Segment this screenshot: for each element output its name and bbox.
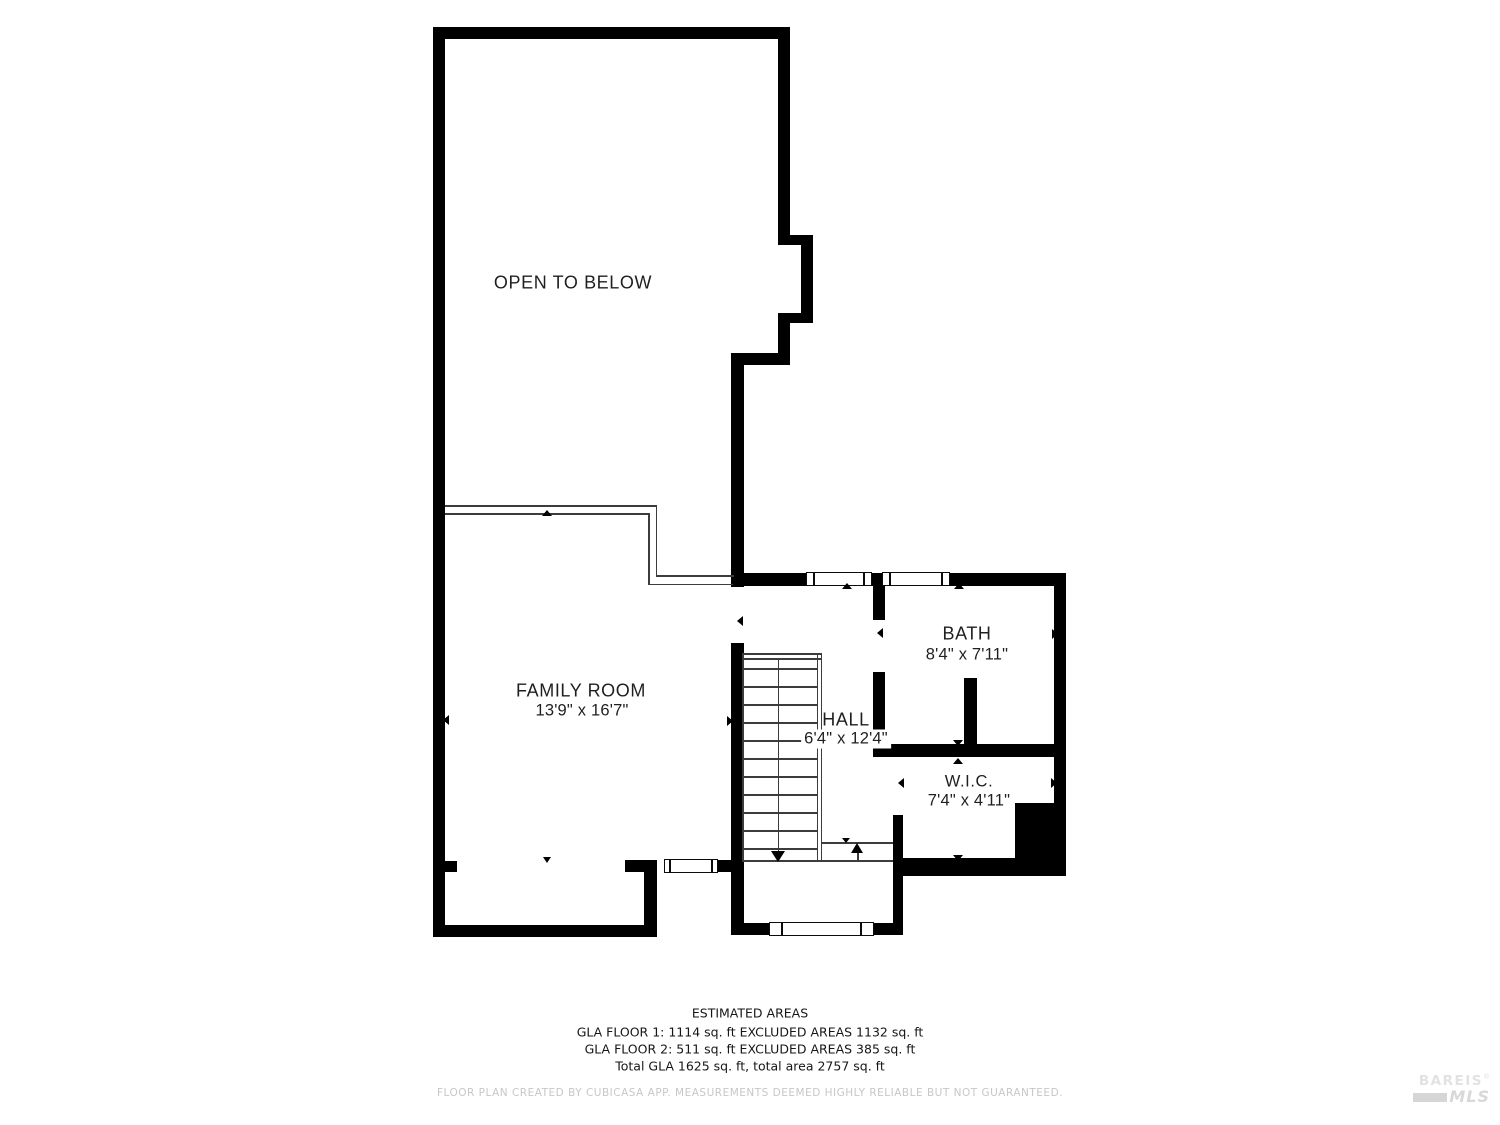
door-marker bbox=[877, 628, 883, 638]
wall-segment bbox=[731, 353, 744, 587]
window bbox=[769, 922, 874, 936]
stair-railing-line bbox=[743, 758, 817, 760]
open-to-below-label: OPEN TO BELOW bbox=[494, 273, 652, 294]
door-marker bbox=[953, 758, 963, 764]
window bbox=[664, 859, 718, 873]
bath-label: BATH bbox=[942, 624, 991, 645]
family-room-label: FAMILY ROOM bbox=[516, 681, 646, 702]
opening-marker bbox=[953, 855, 963, 861]
wall-segment bbox=[445, 861, 457, 872]
family-room-dimensions: 13'9" x 16'7" bbox=[535, 702, 628, 721]
total-gla-line: Total GLA 1625 sq. ft, total area 2757 s… bbox=[0, 1059, 1500, 1074]
wall-segment bbox=[873, 586, 885, 620]
stair-railing-line bbox=[742, 653, 822, 655]
window-mullion bbox=[669, 860, 671, 872]
window-mullion bbox=[860, 923, 862, 935]
opening-marker bbox=[1052, 629, 1058, 639]
stair-railing-line bbox=[648, 584, 733, 586]
window-mullion bbox=[813, 573, 815, 585]
window-marker bbox=[842, 583, 852, 589]
stair-railing-line bbox=[743, 776, 817, 778]
floor-plan: OPEN TO BELOW FAMILY ROOM 13'9" x 16'7" … bbox=[0, 0, 1500, 1125]
wall-segment bbox=[433, 27, 790, 39]
window-mullion bbox=[711, 860, 713, 872]
opening-marker bbox=[443, 715, 449, 725]
opening-marker bbox=[543, 857, 551, 863]
wall-segment bbox=[950, 573, 1066, 586]
door-marker bbox=[898, 778, 904, 788]
stair-railing-line bbox=[778, 658, 780, 854]
stair-railing-line bbox=[743, 686, 817, 688]
stair-railing-line bbox=[743, 704, 817, 706]
opening-marker bbox=[1051, 778, 1057, 788]
window-mullion bbox=[781, 923, 783, 935]
stair-railing-line bbox=[648, 513, 650, 585]
disclaimer-text: FLOOR PLAN CREATED BY CUBICASA APP. MEAS… bbox=[0, 1087, 1500, 1099]
opening-marker bbox=[727, 716, 733, 726]
stair-railing-line bbox=[743, 830, 817, 832]
estimated-areas-title: ESTIMATED AREAS bbox=[0, 1006, 1500, 1021]
window-mullion bbox=[889, 573, 891, 585]
wall-segment bbox=[731, 573, 807, 586]
wall-segment bbox=[893, 858, 1066, 876]
window-mullion bbox=[863, 573, 865, 585]
door-marker bbox=[953, 740, 963, 746]
wall-segment bbox=[801, 235, 813, 323]
gla-floor2-line: GLA FLOOR 2: 511 sq. ft EXCLUDED AREAS 3… bbox=[0, 1042, 1500, 1057]
wall-segment bbox=[625, 860, 652, 872]
wall-segment bbox=[433, 925, 657, 937]
hall-dimensions: 6'4" x 12'4" bbox=[801, 730, 891, 749]
wall-segment bbox=[731, 923, 771, 935]
door-marker bbox=[737, 616, 743, 626]
gla-floor1-line: GLA FLOOR 1: 1114 sq. ft EXCLUDED AREAS … bbox=[0, 1025, 1500, 1040]
wall-segment bbox=[964, 678, 977, 744]
bareis-mls-logo: BAREIS® MLS bbox=[1398, 1072, 1490, 1106]
opening-marker bbox=[842, 838, 850, 843]
stair-railing-line bbox=[445, 505, 657, 507]
stair-railing-line bbox=[743, 722, 817, 724]
stair-railing-line bbox=[821, 653, 823, 862]
stair-railing-line bbox=[743, 794, 817, 796]
bath-dimensions: 8'4" x 7'11" bbox=[926, 646, 1009, 665]
window-mullion bbox=[941, 573, 943, 585]
window bbox=[882, 572, 950, 586]
wic-dimensions: 7'4" x 4'11" bbox=[928, 792, 1011, 811]
stair-railing-line bbox=[656, 505, 658, 576]
stair-railing-line bbox=[743, 848, 817, 850]
wall-segment bbox=[872, 573, 882, 586]
stairs-up-arrow bbox=[851, 843, 863, 853]
wall-segment bbox=[717, 860, 743, 872]
mls-logo-text: MLS bbox=[1449, 1089, 1490, 1105]
mls-logo-bar bbox=[1413, 1093, 1447, 1102]
hall-label: HALL bbox=[822, 710, 869, 731]
window-marker bbox=[954, 583, 964, 589]
opening-marker bbox=[542, 510, 552, 516]
stairs-down-arrow bbox=[771, 851, 785, 862]
stair-railing-line bbox=[743, 668, 817, 670]
wall-segment bbox=[433, 27, 445, 937]
window bbox=[806, 572, 872, 586]
stair-railing-line bbox=[743, 812, 817, 814]
wall-segment bbox=[873, 744, 1066, 757]
bareis-logo-text: BAREIS® bbox=[1398, 1072, 1490, 1089]
stair-railing-line bbox=[656, 575, 734, 577]
mls-logo-row: MLS bbox=[1398, 1089, 1490, 1105]
stair-railing-line bbox=[742, 658, 822, 660]
wall-segment bbox=[1054, 573, 1066, 810]
wall-segment bbox=[778, 27, 790, 245]
wic-label: W.I.C. bbox=[945, 773, 994, 792]
